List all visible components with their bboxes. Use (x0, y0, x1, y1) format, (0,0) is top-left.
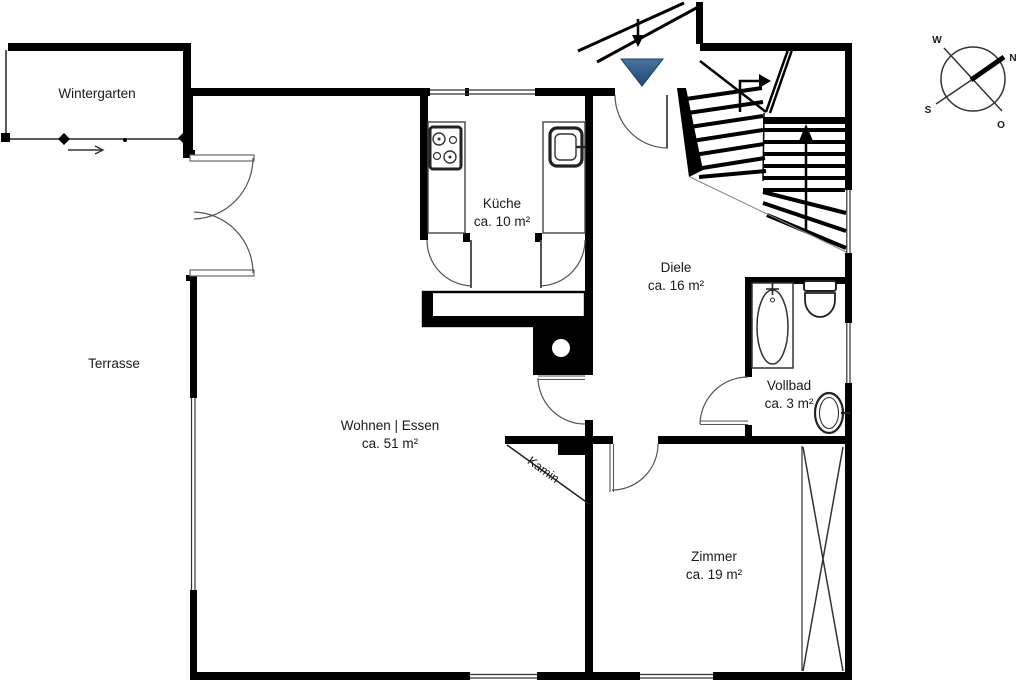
room-area-zimmer: ca. 19 m² (686, 567, 743, 582)
compass-south-label: S (925, 105, 932, 116)
zimmer-door (610, 444, 658, 492)
bathtub-icon (752, 283, 793, 368)
compass-rose: W N S O (925, 35, 1017, 131)
room-label-terrasse: Terrasse (88, 356, 140, 371)
fireplace-label: Kamin (525, 454, 562, 486)
room-label-diele: Diele (661, 260, 692, 275)
room-area-wohnen-essen: ca. 51 m² (362, 436, 419, 451)
toilet-icon (804, 281, 836, 317)
terrace-double-door (190, 155, 254, 276)
room-area-kueche: ca. 10 m² (474, 214, 531, 229)
room-label-wohnen-essen: Wohnen | Essen (341, 418, 440, 433)
wintergarten-glazing (1, 50, 190, 154)
floor-plan-drawing: W N S O Wintergarten Terrasse Küche ca. … (0, 0, 1024, 686)
bathroom-door (700, 377, 748, 425)
compass-north-label: N (1009, 53, 1016, 64)
sliding-door-arrow (68, 146, 103, 154)
sink-icon (550, 128, 586, 166)
kitchen-door-left (427, 240, 472, 288)
chimney-flue-icon (552, 339, 570, 357)
north-needle-icon (971, 57, 1004, 80)
floor-plan: W N S O Wintergarten Terrasse Küche ca. … (0, 0, 1024, 686)
stove-icon (430, 127, 461, 169)
washbasin-icon (815, 393, 850, 433)
sideboard (423, 292, 585, 326)
room-area-vollbad: ca. 3 m² (765, 396, 814, 411)
kitchen-door-right (540, 240, 585, 288)
room-label-kueche: Küche (483, 196, 521, 211)
room-label-wintergarten: Wintergarten (58, 86, 135, 101)
kitchen-fixtures (423, 122, 586, 357)
entrance-marker-icon (621, 59, 663, 86)
compass-west-label: W (932, 35, 942, 46)
room-area-diele: ca. 16 m² (648, 278, 705, 293)
compass-east-label: O (997, 120, 1005, 131)
entrance-door (615, 95, 668, 148)
wardrobe-icon (802, 446, 843, 671)
room-label-zimmer: Zimmer (691, 549, 737, 564)
room-label-vollbad: Vollbad (767, 378, 811, 393)
staircase (686, 47, 846, 252)
diele-living-door (538, 376, 585, 424)
entrance-porch (578, 3, 700, 86)
windows (192, 90, 851, 678)
